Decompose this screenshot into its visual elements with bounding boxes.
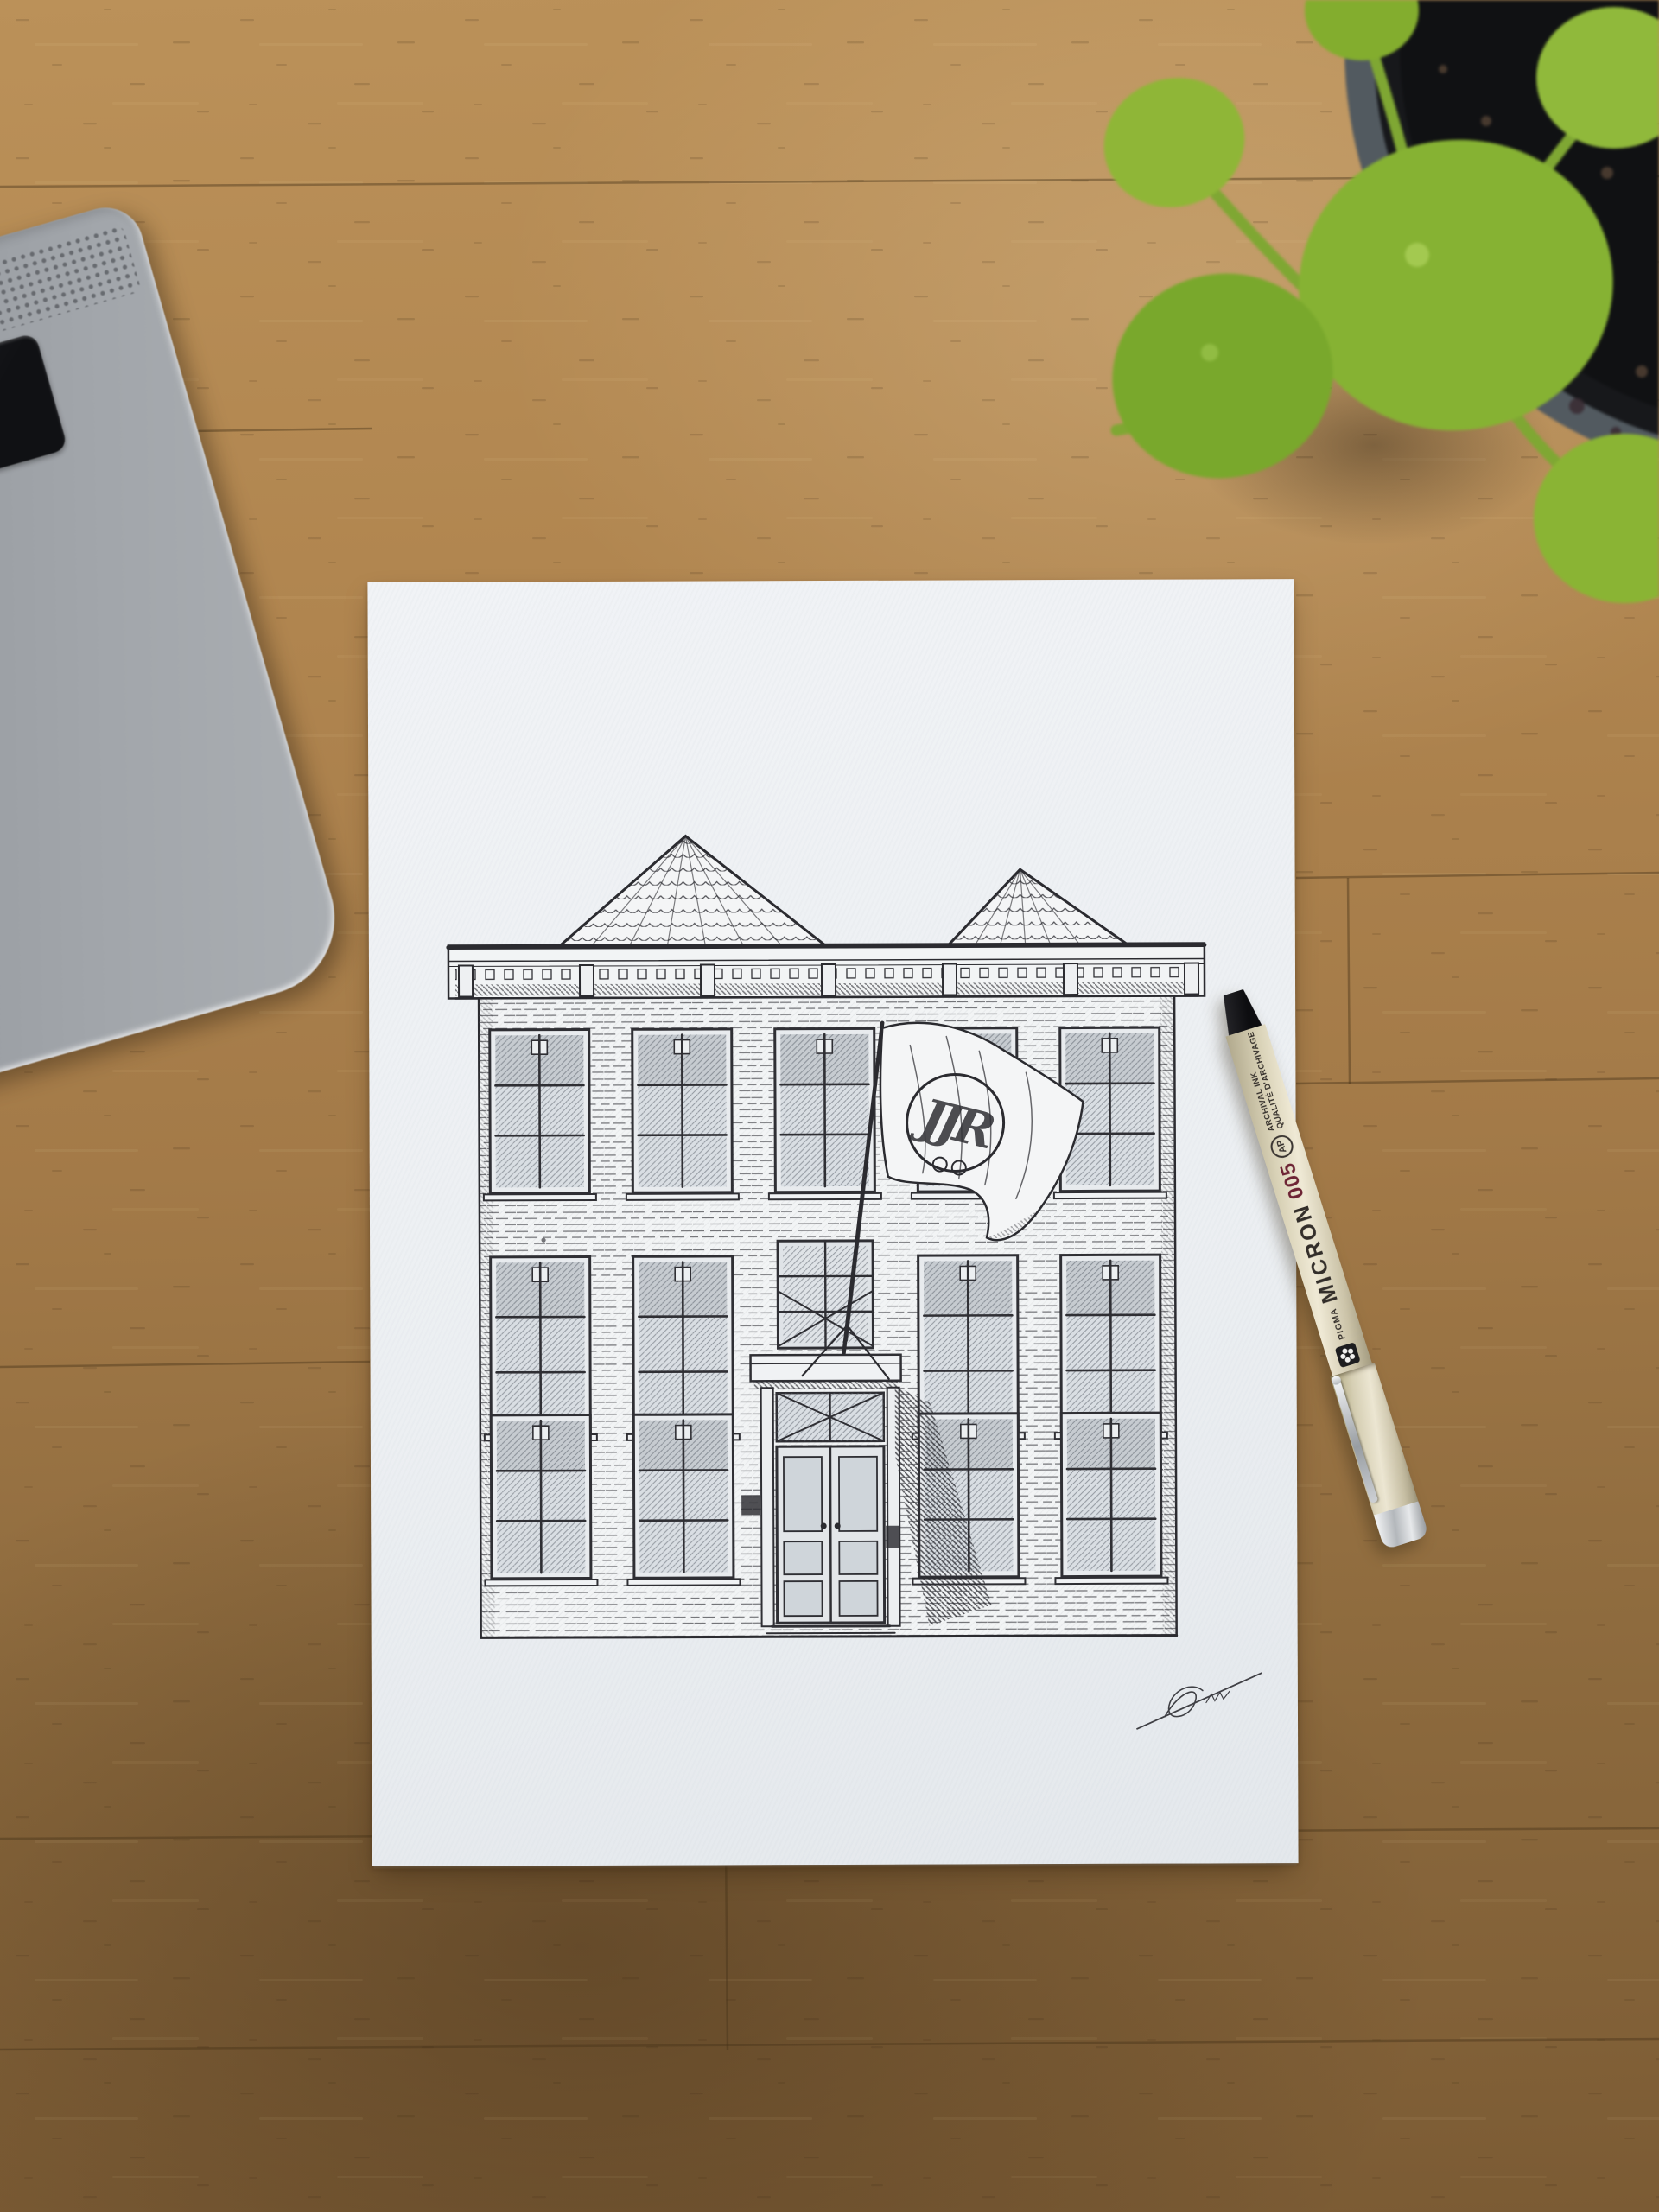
building-drawing: JJR: [367, 579, 1298, 1866]
door-entrance: [741, 1355, 902, 1634]
desk-photo: JJR ◀: [0, 0, 1659, 2212]
leaf: [1087, 60, 1262, 225]
roof-right: [946, 869, 1131, 948]
ap-seal-icon: AP: [1268, 1132, 1296, 1160]
pen-brand-prefix: PIGMA: [1328, 1306, 1347, 1340]
plant: [1071, 0, 1659, 622]
transom-window: [777, 1393, 884, 1441]
doorbell-box: [886, 1526, 899, 1548]
double-door: [777, 1446, 885, 1623]
sakura-flower-icon: [1335, 1342, 1361, 1368]
french-window: [778, 1241, 873, 1348]
paper-sheet: JJR: [367, 579, 1298, 1866]
pen-nib-size: 005: [1275, 1160, 1310, 1202]
cornice: [448, 943, 1205, 998]
laptop-key: ◀: [0, 333, 68, 501]
artist-signature: [1137, 1673, 1262, 1729]
wall-plaque: [741, 1495, 760, 1515]
ink-blot: [541, 1238, 545, 1243]
roof-left: [556, 836, 828, 949]
